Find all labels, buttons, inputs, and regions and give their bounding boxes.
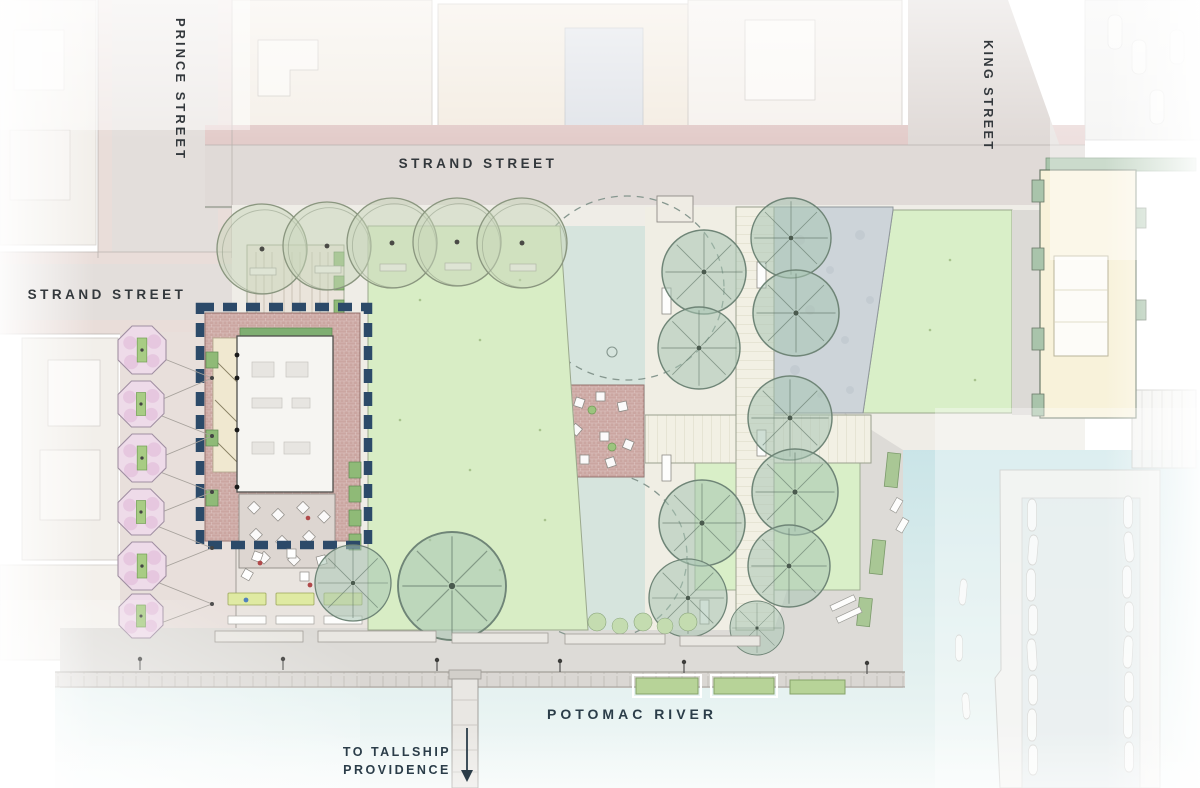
site-plan-svg: PRINCE STREET KING STREET STRAND STREET … bbox=[0, 0, 1200, 788]
tallship-label-line1: TO TALLSHIP bbox=[343, 745, 451, 759]
east-path bbox=[1012, 210, 1040, 415]
potomac-river-label: POTOMAC RIVER bbox=[547, 706, 717, 722]
strand-street-top-label: STRAND STREET bbox=[399, 156, 558, 171]
site-plan-image: PRINCE STREET KING STREET STRAND STREET … bbox=[0, 0, 1200, 788]
strand-street-left-label: STRAND STREET bbox=[28, 287, 187, 302]
pavilion-building bbox=[237, 336, 333, 492]
king-street-label: KING STREET bbox=[981, 40, 995, 152]
building-block bbox=[200, 307, 368, 568]
tallship-label-line2: PROVIDENCE bbox=[343, 763, 451, 777]
strand-street-trees bbox=[217, 198, 567, 294]
prince-street-label: PRINCE STREET bbox=[173, 18, 188, 161]
